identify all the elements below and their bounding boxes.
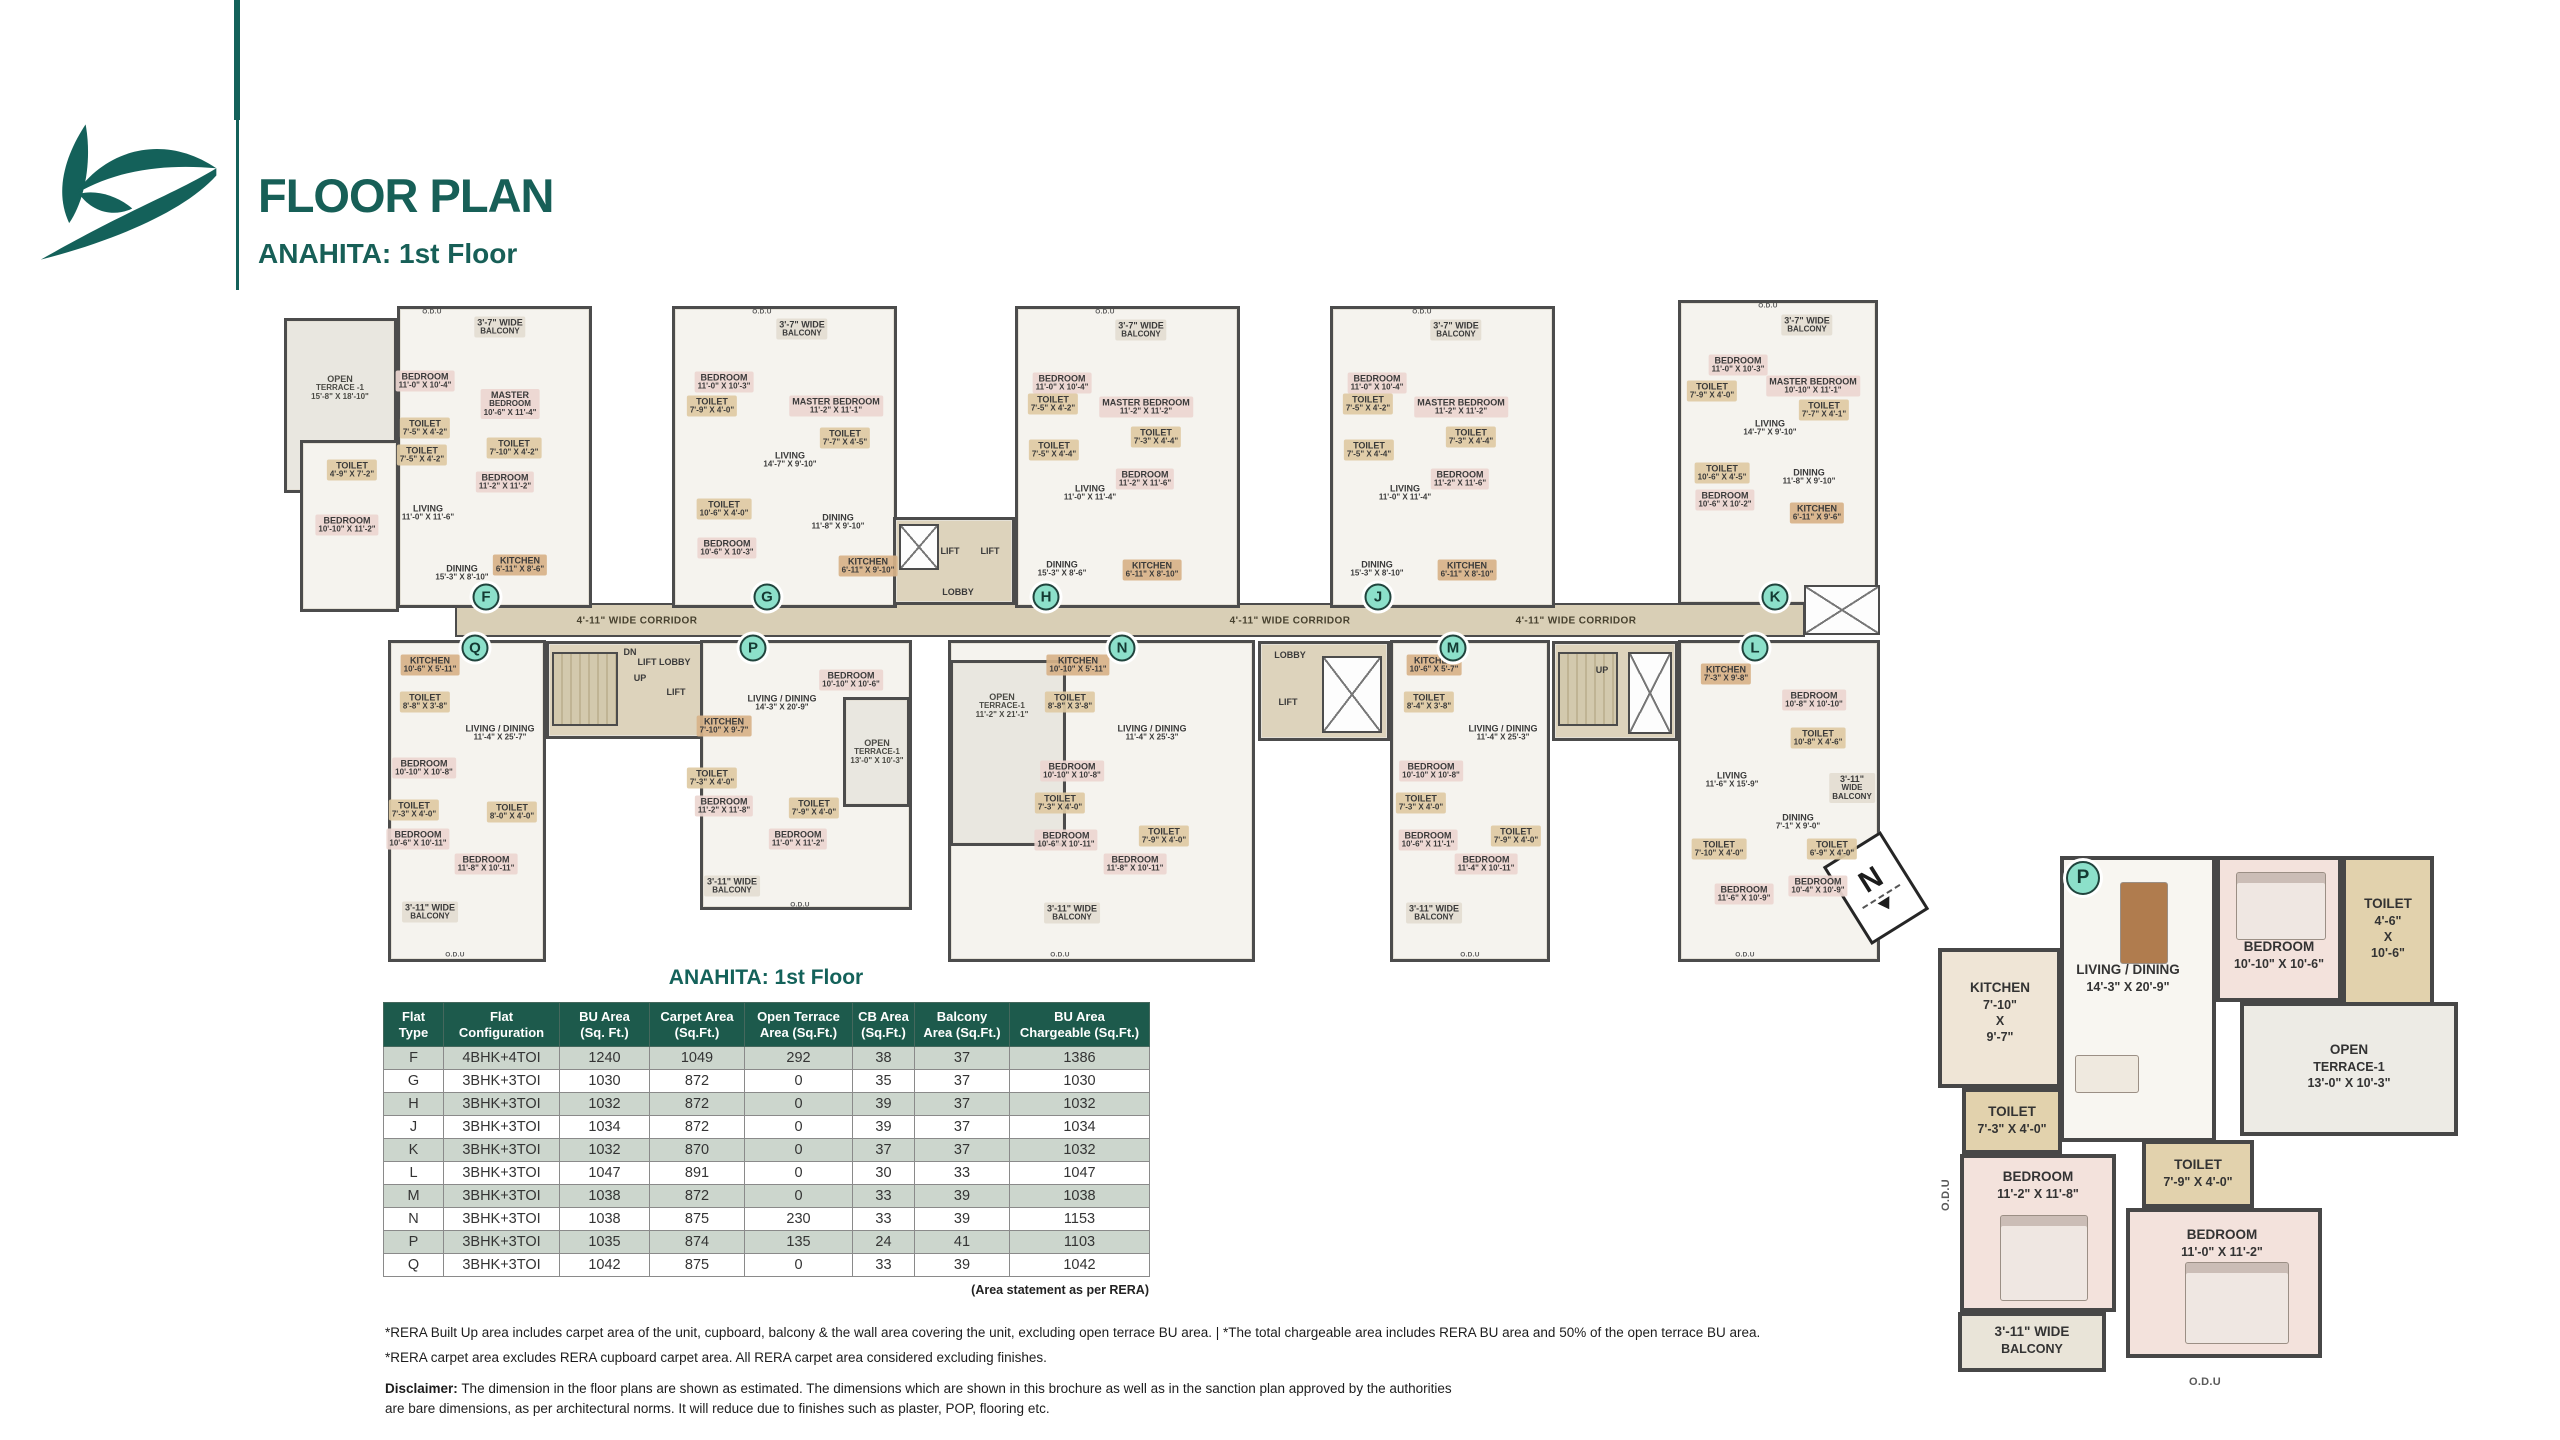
room-label: LIVING / DINING11'-4" X 25'-3" [1114, 722, 1189, 743]
room-label: KITCHEN10'-6" X 5'-11" [401, 654, 460, 675]
room-label: TOILET10'-6" X 4'-5" [1695, 462, 1750, 483]
room-label: TOILET8'-8" X 3'-8" [1045, 691, 1095, 712]
table-row-flat-k: K3BHK+3TOI1032870037371032 [384, 1139, 1150, 1162]
page-subtitle: ANAHITA: 1st Floor [258, 238, 517, 270]
detail-room-label: 3'-11" WIDEBALCONY [1995, 1323, 2070, 1357]
unit-badge-m: M [1440, 635, 1467, 662]
unit-badge-g: G [754, 584, 781, 611]
room-dims: 7'-5" X 4'-4" [1032, 451, 1076, 460]
table-cell: 37 [915, 1093, 1010, 1116]
room-dims: 7'-3" X 4'-4" [1134, 438, 1178, 447]
odu-label: O.D.U [2189, 1376, 2221, 1388]
room-label: KITCHEN7'-10" X 9'-7" [697, 715, 752, 736]
room-label: 3'-7" WIDEBALCONY [776, 318, 827, 339]
room-dims: X [1970, 1013, 2030, 1029]
table-cell: 3BHK+3TOI [444, 1139, 560, 1162]
table-row-flat-f: F4BHK+4TOI1240104929238371386 [384, 1047, 1150, 1070]
table-row-flat-l: L3BHK+3TOI1047891030331047 [384, 1162, 1150, 1185]
brand-leaf-logo [28, 118, 220, 271]
table-cell: 875 [650, 1208, 745, 1231]
brand-divider-thin [236, 118, 239, 290]
room-label: TOILET7'-3" X 4'-4" [1446, 426, 1496, 447]
room-label: TOILET10'-8" X 4'-6" [1791, 727, 1846, 748]
room-dims: 4'-6" [2364, 912, 2412, 928]
table-cell: 1032 [560, 1139, 650, 1162]
detail-room-label: TOILET7'-3" X 4'-0" [1977, 1103, 2046, 1137]
table-cell: 39 [915, 1185, 1010, 1208]
room-label: LIFT [978, 545, 1003, 557]
room-label: 3'-11" WIDEBALCONY [1044, 902, 1100, 923]
room-dims: BALCONY [1409, 914, 1459, 923]
room-dims: BALCONY [779, 330, 824, 339]
room-dims: 11'-2" X 11'-2" [1417, 408, 1505, 417]
table-cell: 1032 [560, 1093, 650, 1116]
room-dims: 11'-2" X 11'-6" [1119, 480, 1171, 489]
room-dims: 15'-3" X 8'-10" [435, 574, 488, 583]
room-label: BEDROOM11'-2" X 11'-2" [476, 471, 534, 492]
room-name: LIFT [941, 546, 960, 556]
room-label: BEDROOM10'-10" X 11'-2" [315, 514, 378, 535]
room-label: TOILET7'-5" X 4'-4" [1344, 439, 1394, 460]
room-label: MASTER BEDROOM11'-2" X 11'-2" [1099, 396, 1193, 417]
disclaimer-text: The dimension in the floor plans are sho… [385, 1381, 1452, 1416]
room-label: BEDROOM10'-8" X 10'-10" [1782, 689, 1846, 710]
table-cell: 1042 [560, 1254, 650, 1277]
room-label: LIVING / DINING11'-4" X 25'-3" [1465, 722, 1540, 743]
room-label: BEDROOM10'-10" X 10'-8" [1040, 760, 1104, 781]
shaft-xbox [899, 524, 939, 570]
unit-badge-l: L [1742, 635, 1769, 662]
room-label: TOILET8'-4" X 3'-8" [1404, 691, 1454, 712]
room-dims: BALCONY [1832, 793, 1872, 802]
table-cell: 3BHK+3TOI [444, 1093, 560, 1116]
room-label: BEDROOM11'-2" X 11'-6" [1116, 468, 1174, 489]
room-label: LOBBY [939, 586, 977, 598]
table-cell: 891 [650, 1162, 745, 1185]
room-dims: 7'-3" X 9'-8" [1704, 675, 1748, 684]
odu-label: O.D.U [1940, 1179, 1952, 1211]
room-dims: 10'-10" X 10'-6" [2234, 956, 2324, 972]
column-header: BU Area(Sq. Ft.) [560, 1003, 650, 1047]
room-label: 3'-11"WIDEBALCONY [1829, 773, 1875, 803]
room-label: KITCHEN10'-10" X 5'-11" [1046, 654, 1109, 675]
room-name: TOILET [2163, 1156, 2232, 1174]
room-dims: 14'-3" X 20'-9" [747, 704, 816, 713]
table-cell: 1047 [1010, 1162, 1150, 1185]
room-dims: 15'-3" X 8'-10" [1350, 570, 1403, 579]
room-dims: 10'-6" X 10'-2" [1698, 501, 1751, 510]
room-dims: 7'-10" X 4'-2" [490, 449, 539, 458]
table-cell: 3BHK+3TOI [444, 1208, 560, 1231]
room-label: LIVING11'-0" X 11'-6" [399, 502, 457, 523]
table-cell: 1240 [560, 1047, 650, 1070]
room-label: 3'-7" WIDEBALCONY [1115, 319, 1166, 340]
room-label: DINING11'-8" X 9'-10" [809, 511, 868, 532]
room-dims: 7'-9" X 4'-0" [792, 809, 836, 818]
room-name: LOBBY [1274, 650, 1306, 660]
table-row-flat-m: M3BHK+3TOI1038872033391038 [384, 1185, 1150, 1208]
room-label: TOILET7'-5" X 4'-4" [1029, 439, 1079, 460]
room-label: TOILET7'-9" X 4'-0" [1687, 380, 1737, 401]
room-label: OPENTERRACE-113'-0" X 10'-3" [847, 737, 906, 767]
table-cell: 33 [915, 1162, 1010, 1185]
room-dims: 7'-3" X 4'-0" [1977, 1121, 2046, 1137]
table-cell: F [384, 1047, 444, 1070]
table-cell: 0 [745, 1116, 853, 1139]
room-dims: TERRACE-1 [2307, 1059, 2390, 1075]
room-dims: 11'-8" X 9'-10" [812, 523, 865, 532]
room-label: BEDROOM11'-0" X 10'-3" [695, 371, 754, 392]
room-dims: 10'-6" X 4'-0" [700, 510, 749, 519]
table-row-flat-q: Q3BHK+3TOI1042875033391042 [384, 1254, 1150, 1277]
room-label: BEDROOM10'-6" X 10'-3" [697, 537, 756, 558]
room-dims: 10'-10" X 10'-8" [1043, 772, 1101, 781]
room-name: TOILET [2364, 895, 2412, 913]
room-label: LIVING / DINING11'-4" X 25'-7" [462, 722, 537, 743]
room-dims: 7'-5" X 4'-2" [1031, 405, 1075, 414]
room-dims: 11'-2" X 11'-6" [1434, 480, 1486, 489]
room-name: LOBBY [942, 587, 974, 597]
table-cell: J [384, 1116, 444, 1139]
room-label: KITCHEN6'-11" X 8'-10" [1123, 559, 1182, 580]
room-label: TOILET8'-0" X 4'-0" [487, 801, 537, 822]
room-name: LIFT LOBBY [638, 657, 691, 667]
room-dims: 7'-5" X 4'-4" [1347, 451, 1391, 460]
room-dims: 11'-0" X 11'-6" [402, 514, 454, 523]
table-cell: 24 [853, 1231, 915, 1254]
room-name: BEDROOM [2181, 1226, 2263, 1244]
room-dims: 10'-10" X 5'-11" [1049, 666, 1106, 675]
room-label: TOILET7'-7" X 4'-1" [1799, 399, 1849, 420]
room-dims: 11'-2" X 11'-8" [1997, 1186, 2079, 1202]
furniture-dining-table [2120, 882, 2168, 964]
room-label: LIFT [938, 545, 963, 557]
detail-room-label: TOILET4'-6"X10'-6" [2364, 895, 2412, 961]
table-cell: 1042 [1010, 1254, 1150, 1277]
table-cell: 0 [745, 1070, 853, 1093]
room-dims: 7'-3" X 4'-0" [1038, 804, 1082, 813]
room-dims: 11'-0" X 10'-3" [1712, 366, 1765, 375]
room-dims: BALCONY [405, 913, 455, 922]
table-cell: Q [384, 1254, 444, 1277]
table-row-flat-p: P3BHK+3TOI103587413524411103 [384, 1231, 1150, 1254]
room-label: BEDROOM10'-10" X 10'-8" [1399, 760, 1463, 781]
room-label: LIVING14'-7" X 9'-10" [1740, 417, 1799, 438]
table-cell: 33 [853, 1185, 915, 1208]
room-dims: 10'-6" [2364, 945, 2412, 961]
detail-room-label: OPENTERRACE-113'-0" X 10'-3" [2307, 1041, 2390, 1091]
table-cell: 0 [745, 1254, 853, 1277]
detail-room-label: LIVING / DINING14'-3" X 20'-9" [2076, 961, 2180, 995]
room-label: BEDROOM11'-8" X 10'-11" [1104, 853, 1167, 874]
corridor-label: 4'-11" WIDE CORRIDOR [1516, 616, 1637, 627]
odu-label: O.D.U [422, 309, 442, 316]
room-label: LIVING11'-0" X 11'-4" [1061, 482, 1119, 503]
table-cell: 1030 [560, 1070, 650, 1093]
room-dims: 11'-4" X 25'-3" [1117, 734, 1186, 743]
room-label: BEDROOM11'-6" X 10'-9" [1715, 883, 1774, 904]
table-cell: 3BHK+3TOI [444, 1162, 560, 1185]
table-cell: 1386 [1010, 1047, 1150, 1070]
room-label: DINING15'-3" X 8'-6" [1035, 558, 1090, 579]
room-name: LIFT [1279, 697, 1298, 707]
room-dims: 7'-10" X 9'-7" [700, 727, 749, 736]
room-dims: 10'-6" X 11'-4" [484, 409, 537, 418]
room-dims: 6'-11" X 9'-6" [1793, 514, 1841, 523]
room-dims: 10'-6" X 10'-11" [1037, 841, 1094, 850]
table-cell: 3BHK+3TOI [444, 1231, 560, 1254]
room-dims: 4'-9" X 7'-2" [330, 471, 374, 480]
unit-badge-p-detail: P [2066, 861, 2100, 895]
room-dims: 10'-6" X 5'-7" [1410, 666, 1459, 675]
room-dims: 8'-4" X 3'-8" [1407, 703, 1451, 712]
room-name: LIFT [667, 687, 686, 697]
room-dims: 8'-0" X 4'-0" [490, 813, 534, 822]
room-dims: BALCONY [1784, 326, 1829, 335]
room-dims: 11'-0" X 11'-2" [2181, 1244, 2263, 1260]
table-cell: 37 [915, 1047, 1010, 1070]
column-header: BU AreaChargeable (Sq.Ft.) [1010, 1003, 1150, 1047]
table-cell: 1047 [560, 1162, 650, 1185]
room-dims: 14'-3" X 20'-9" [2076, 979, 2180, 995]
detail-room-label: TOILET7'-9" X 4'-0" [2163, 1156, 2232, 1190]
table-cell: 4BHK+4TOI [444, 1047, 560, 1070]
room-dims: 10'-4" X 10'-9" [1791, 887, 1844, 896]
room-label: 3'-11" WIDEBALCONY [704, 875, 760, 896]
terrace-n [950, 660, 1066, 846]
room-label: TOILET7'-10" X 4'-0" [1692, 838, 1747, 859]
room-dims: 11'-0" X 10'-4" [399, 382, 452, 391]
room-dims: 13'-0" X 10'-3" [850, 757, 903, 766]
table-cell: 1049 [650, 1047, 745, 1070]
unit-badge-q: Q [462, 635, 489, 662]
table-cell: H [384, 1093, 444, 1116]
table-cell: 1034 [1010, 1116, 1150, 1139]
table-cell: 41 [915, 1231, 1010, 1254]
room-dims: 10'-10" X 10'-8" [1402, 772, 1460, 781]
room-name: LIVING / DINING [2076, 961, 2180, 979]
table-cell: 870 [650, 1139, 745, 1162]
table-header: FlatTypeFlatConfigurationBU Area(Sq. Ft.… [384, 1003, 1150, 1047]
disclaimer: Disclaimer: The dimension in the floor p… [385, 1379, 1470, 1420]
column-header: CB Area(Sq.Ft.) [853, 1003, 915, 1047]
table-cell: 39 [853, 1093, 915, 1116]
room-label: 3'-11" WIDEBALCONY [402, 901, 458, 922]
table-cell: 38 [853, 1047, 915, 1070]
detail-room-label: KITCHEN7'-10"X9'-7" [1970, 979, 2030, 1045]
table-cell: 3BHK+3TOI [444, 1070, 560, 1093]
column-header: Open TerraceArea (Sq.Ft.) [745, 1003, 853, 1047]
room-dims: BALCONY [1047, 914, 1097, 923]
table-cell: 39 [915, 1254, 1010, 1277]
table-cell: 33 [853, 1254, 915, 1277]
room-label: MASTER BEDROOM11'-2" X 11'-2" [1414, 396, 1508, 417]
unit-badge-h: H [1033, 584, 1060, 611]
room-dims: 11'-0" X 11'-2" [772, 840, 824, 849]
disclaimer-label: Disclaimer: [385, 1381, 458, 1396]
detail-room-label: BEDROOM11'-2" X 11'-8" [1997, 1168, 2079, 1202]
room-label: BEDROOM10'-6" X 10'-11" [1034, 829, 1097, 850]
room-dims: 11'-8" X 9'-10" [1783, 478, 1836, 487]
room-label: KITCHEN6'-11" X 8'-10" [1438, 559, 1497, 580]
table-cell: 1153 [1010, 1208, 1150, 1231]
table-cell: 872 [650, 1070, 745, 1093]
room-dims: 11'-6" X 10'-9" [1718, 895, 1771, 904]
odu-label: O.D.U [752, 309, 772, 316]
room-label: TOILET7'-9" X 4'-0" [789, 797, 839, 818]
room-label: TOILET7'-5" X 4'-2" [400, 417, 450, 438]
shaft-xbox [1628, 652, 1672, 734]
room-name: BEDROOM [1997, 1168, 2079, 1186]
room-label: UP [631, 672, 650, 684]
room-label: BEDROOM10'-6" X 10'-11" [386, 828, 449, 849]
footnote-rera-carpet: *RERA carpet area excludes RERA cupboard… [385, 1350, 1047, 1365]
table-cell: 875 [650, 1254, 745, 1277]
table-cell: M [384, 1185, 444, 1208]
room-dims: 7'-3" X 4'-4" [1449, 438, 1493, 447]
room-dims: 10'-10" X 10'-6" [822, 681, 880, 690]
furniture-bed-top [2236, 872, 2326, 940]
room-label: TOILET8'-8" X 3'-8" [400, 691, 450, 712]
table-cell: N [384, 1208, 444, 1231]
room-dims: 6'-9" X 4'-0" [1810, 850, 1854, 859]
room-label: KITCHEN7'-3" X 9'-8" [1701, 663, 1751, 684]
table-row-flat-j: J3BHK+3TOI1034872039371034 [384, 1116, 1150, 1139]
room-dims: 11'-0" X 11'-4" [1064, 494, 1116, 503]
wing-k [1678, 300, 1878, 605]
room-label: TOILET7'-3" X 4'-4" [1131, 426, 1181, 447]
odu-label: O.D.U [445, 952, 465, 959]
room-dims: 11'-2" X 11'-2" [1102, 408, 1190, 417]
room-label: LIVING14'-7" X 9'-10" [760, 449, 819, 470]
room-dims: 9'-7" [1970, 1029, 2030, 1045]
table-cell: 1038 [560, 1185, 650, 1208]
room-dims: 7'-1" X 9'-0" [1776, 823, 1820, 832]
room-dims: 7'-3" X 4'-0" [690, 779, 734, 788]
room-dims: 7'-9" X 4'-0" [2163, 1174, 2232, 1190]
room-label: LIVING11'-0" X 11'-4" [1376, 482, 1434, 503]
room-label: TOILET6'-9" X 4'-0" [1807, 838, 1857, 859]
table-cell: 0 [745, 1162, 853, 1185]
table-cell: 1032 [1010, 1093, 1150, 1116]
table-cell: 1035 [560, 1231, 650, 1254]
unit-badge-n: N [1109, 635, 1136, 662]
table-row-flat-g: G3BHK+3TOI1030872035371030 [384, 1070, 1150, 1093]
table-cell: 39 [853, 1116, 915, 1139]
room-name: OPEN [2307, 1041, 2390, 1059]
room-dims: 8'-8" X 3'-8" [403, 703, 447, 712]
room-dims: 11'-0" X 10'-3" [698, 383, 751, 392]
room-dims: 10'-6" X 5'-11" [404, 666, 457, 675]
room-dims: 11'-0" X 10'-4" [1036, 384, 1089, 393]
room-label: BEDROOM10'-10" X 10'-6" [819, 669, 883, 690]
room-dims: 10'-6" X 10'-11" [389, 840, 446, 849]
room-name: UP [634, 673, 647, 683]
room-dims: 11'-2" X 11'-1" [792, 407, 880, 416]
room-dims: 7'-9" X 4'-0" [690, 407, 734, 416]
room-label: LIFT [1276, 696, 1301, 708]
room-label: KITCHEN6'-11" X 8'-6" [493, 554, 547, 575]
room-dims: 13'-0" X 10'-3" [2307, 1075, 2390, 1091]
shaft-xbox [1804, 585, 1880, 635]
unit-badge-k: K [1762, 584, 1789, 611]
room-dims: 11'-8" X 10'-11" [1107, 865, 1164, 874]
odu-label: O.D.U [790, 902, 810, 909]
room-dims: 10'-6" X 4'-5" [1698, 474, 1747, 483]
room-label: BEDROOM10'-4" X 10'-9" [1788, 875, 1847, 896]
room-label: LOBBY [1271, 649, 1309, 661]
unit-badge-j: J [1365, 584, 1392, 611]
room-label: DINING15'-3" X 8'-10" [432, 562, 491, 583]
room-dims: 15'-3" X 8'-6" [1038, 570, 1087, 579]
column-header: Carpet Area(Sq.Ft.) [650, 1003, 745, 1047]
odu-label: O.D.U [1735, 952, 1755, 959]
shaft-xbox [1322, 656, 1382, 733]
table-cell: L [384, 1162, 444, 1185]
room-dims: 7'-7" X 4'-1" [1802, 411, 1846, 420]
table-cell: 3BHK+3TOI [444, 1116, 560, 1139]
room-dims: 15'-8" X 18'-10" [311, 393, 369, 402]
odu-label: O.D.U [1095, 309, 1115, 316]
room-label: BEDROOM11'-4" X 10'-11" [1455, 853, 1518, 874]
room-label: BEDROOM10'-10" X 10'-8" [392, 757, 456, 778]
room-dims: 11'-0" X 11'-4" [1379, 494, 1431, 503]
room-dims: 7'-5" X 4'-2" [400, 456, 444, 465]
room-dims: 11'-4" X 25'-7" [465, 734, 534, 743]
table-cell: 3BHK+3TOI [444, 1254, 560, 1277]
room-label: TOILET7'-5" X 4'-2" [1343, 393, 1393, 414]
detail-room-label: BEDROOM10'-10" X 10'-6" [2234, 938, 2324, 972]
detail-room-label: BEDROOM11'-0" X 11'-2" [2181, 1226, 2263, 1260]
room-dims: 11'-0" X 10'-4" [1351, 384, 1404, 393]
room-label: BEDROOM10'-6" X 11'-1" [1399, 829, 1458, 850]
room-label: 3'-7" WIDEBALCONY [474, 316, 525, 337]
room-dims: 11'-2" X 11'-8" [698, 807, 750, 816]
corridor-label: 4'-11" WIDE CORRIDOR [1230, 616, 1351, 627]
room-label: BEDROOM11'-2" X 11'-6" [1431, 468, 1489, 489]
room-dims: BALCONY [1995, 1341, 2070, 1357]
area-statement-table: FlatTypeFlatConfigurationBU Area(Sq. Ft.… [383, 1002, 1150, 1277]
room-label: LIFT [664, 686, 689, 698]
table-cell: 1032 [1010, 1139, 1150, 1162]
room-label: BEDROOM11'-0" X 10'-4" [1033, 372, 1092, 393]
room-label: DINING11'-8" X 9'-10" [1780, 466, 1839, 487]
odu-label: O.D.U [1758, 303, 1778, 310]
room-dims: 14'-7" X 9'-10" [763, 461, 816, 470]
room-label: TOILET7'-3" X 4'-0" [389, 799, 439, 820]
table-cell: 872 [650, 1093, 745, 1116]
table-note: (Area statement as per RERA) [383, 1283, 1149, 1297]
room-label: TOILET7'-9" X 4'-0" [1491, 825, 1541, 846]
room-dims: 7'-3" X 4'-0" [1399, 804, 1443, 813]
staircase [552, 652, 618, 726]
room-label: TOILET7'-7" X 4'-5" [820, 427, 870, 448]
room-dims: 11'-4" X 10'-11" [1458, 865, 1515, 874]
room-dims: X [2364, 929, 2412, 945]
room-label: BEDROOM11'-0" X 10'-4" [1348, 372, 1407, 393]
room-label: DINING15'-3" X 8'-10" [1347, 558, 1406, 579]
table-cell: 0 [745, 1139, 853, 1162]
room-dims: 8'-8" X 3'-8" [1048, 703, 1092, 712]
room-dims: 7'-9" X 4'-0" [1494, 837, 1538, 846]
room-label: TOILET10'-6" X 4'-0" [697, 498, 752, 519]
table-cell: 872 [650, 1116, 745, 1139]
furniture-sofa [2075, 1055, 2139, 1093]
room-label: UP [1593, 664, 1612, 676]
unit-badge-p: P [740, 635, 767, 662]
room-dims: 14'-7" X 9'-10" [1743, 429, 1796, 438]
room-dims: 7'-7" X 4'-5" [823, 439, 867, 448]
